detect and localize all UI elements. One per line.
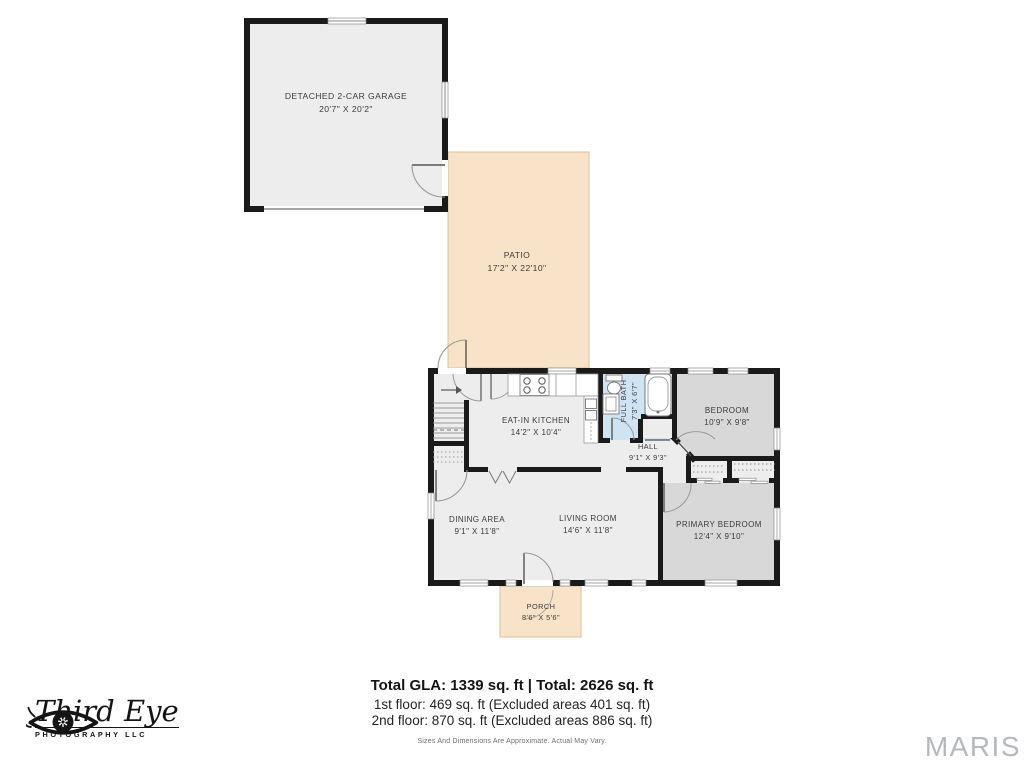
hall-label: Hall9'1" x 9'3" bbox=[629, 441, 667, 463]
kitchen-window bbox=[548, 368, 576, 374]
bedroom-window-top-1 bbox=[688, 368, 713, 374]
bath-window bbox=[650, 368, 670, 374]
patio-label: Patio17'2" x 22'10" bbox=[488, 249, 547, 275]
linen-closet-floor bbox=[643, 419, 672, 438]
total-gla-line: Total GLA: 1339 sq. ft | Total: 2626 sq.… bbox=[0, 677, 1024, 694]
porch-sidelite-right bbox=[560, 580, 570, 586]
dining-area-label: Dining Area9'1" x 11'8" bbox=[449, 514, 505, 538]
floor-plan-page: Detached 2-car Garage20'7" x 20'2" Patio… bbox=[0, 0, 1024, 768]
stove-icon bbox=[520, 375, 549, 396]
third-eye-icon bbox=[26, 699, 100, 745]
kitchen-label: Eat-in Kitchen14'2" x 10'4" bbox=[502, 415, 570, 439]
porch-sidelite-left bbox=[506, 580, 516, 586]
floor-plan-drawing bbox=[0, 0, 1024, 768]
primary-window-right bbox=[774, 508, 780, 540]
living-window-bottom-1 bbox=[585, 580, 608, 586]
maris-watermark: MARIS bbox=[925, 731, 1021, 763]
bedroom-label: Bedroom10'9" x 9'8" bbox=[704, 405, 750, 429]
porch-label: Porch8'6" x 5'6" bbox=[522, 601, 560, 623]
bathtub-icon bbox=[645, 374, 671, 416]
full-bath-label: Full Bath7'3" x 6'7" bbox=[618, 380, 640, 423]
disclaimer-text: Sizes And Dimensions Are Approximate. Ac… bbox=[0, 738, 1024, 745]
living-window-bottom-2 bbox=[632, 580, 646, 586]
living-room-label: Living Room14'6" x 11'8" bbox=[559, 513, 617, 537]
bedroom-window-right bbox=[774, 428, 780, 450]
garage-window-top bbox=[328, 18, 366, 24]
garage-window-right bbox=[442, 82, 448, 118]
dining-window-left bbox=[428, 493, 434, 519]
primary-bedroom-label: Primary Bedroom12'4" x 9'10" bbox=[676, 519, 762, 543]
bedroom-window-top-2 bbox=[728, 368, 748, 374]
garage-label: Detached 2-car Garage20'7" x 20'2" bbox=[285, 90, 407, 116]
primary-window-bottom bbox=[705, 580, 737, 586]
garage-door bbox=[264, 206, 424, 212]
vanity-sink-icon bbox=[603, 394, 619, 414]
dining-window-bottom bbox=[460, 580, 488, 586]
photographer-logo: Third Eye PHOTOGRAPHY LLC bbox=[26, 699, 179, 739]
